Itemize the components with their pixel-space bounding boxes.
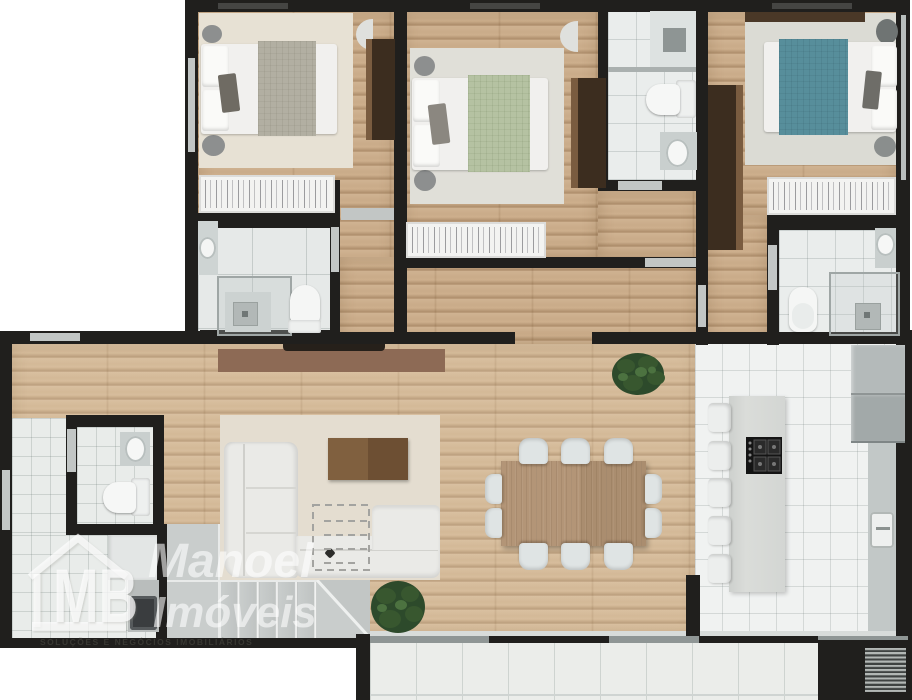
- svg-text:MB: MB: [53, 554, 138, 639]
